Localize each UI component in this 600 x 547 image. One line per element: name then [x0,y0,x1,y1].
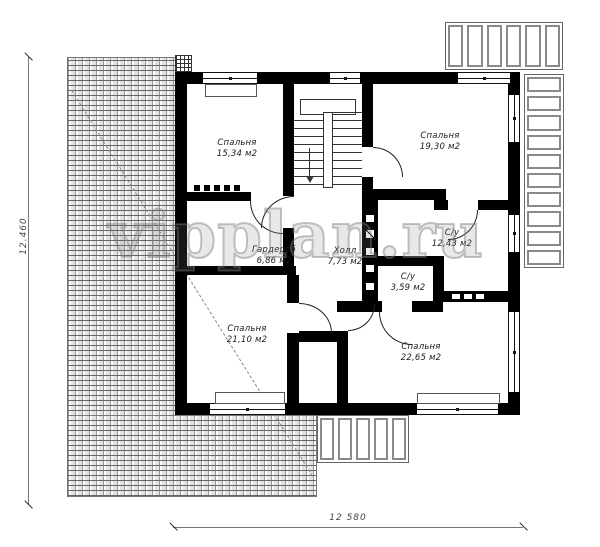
pergola-slat [374,418,388,460]
stair-direction-arrow [306,176,314,183]
pergola-slat [545,25,560,67]
wall-stair-left [283,72,294,175]
window [458,72,510,84]
pergola-slat [527,96,561,111]
pergola-top [445,22,563,70]
pergola-slat [527,173,561,188]
pergola-slat [467,25,482,67]
pergola-bottom [317,415,409,463]
pergola-right [524,74,564,268]
room-name: С/у [401,272,415,282]
window [417,403,498,415]
pergola-slat [527,231,561,246]
vent-mark [234,185,240,191]
room-name: Спальня [420,131,459,141]
shaft-vent-hatched [366,230,374,238]
room-area: 6,86 м2 [257,256,292,266]
wall-bedroom2-bottom-right-b [478,200,509,210]
stair-flight-right [332,112,362,186]
room-name: Спальня [217,138,256,148]
pergola-slat [527,154,561,169]
wall-bedroom1-bottom [175,192,251,201]
room-name: С/у [445,228,459,238]
door-arc-bath2 [379,312,412,345]
wall-bedroom3-right-a [287,275,299,303]
door-arc-bedroom3 [299,303,332,333]
stair-center-rail [323,112,333,188]
shaft-vent [366,215,374,222]
wall-stair-right [362,72,373,147]
pergola-slat [527,77,561,92]
room-name: Спальня [401,342,440,352]
pergola-slat [527,135,561,150]
room-area: 7,73 м2 [328,257,363,267]
pergola-slat [527,211,561,226]
pergola-slat [525,25,540,67]
room-area: 12,43 м2 [432,239,472,249]
room-area: 22,65 м2 [401,353,441,363]
room-label-bath2: С/у 3,59 м2 [363,272,453,294]
stair-direction-line [309,148,310,176]
room-area: 21,10 м2 [227,335,267,345]
pergola-slat [320,418,334,460]
vent-mark [224,185,230,191]
room-area: 3,59 м2 [391,283,426,293]
vent-mark-white [476,294,484,299]
wall-bedroom4-left [337,331,348,415]
window [330,72,360,84]
pergola-slat [527,192,561,207]
wall-stair-right-stub [362,177,373,189]
room-area: 15,34 м2 [217,149,257,159]
window [508,215,520,252]
wall-bath2-bottom-b [412,301,443,312]
door-arc-bedroom4 [348,304,375,331]
vent-mark [194,185,200,191]
pergola-slat [356,418,370,460]
window [508,312,520,392]
room-label-bedroom4: Спальня 22,65 м2 [376,342,466,364]
window [508,95,520,142]
room-name: Спальня [227,324,266,334]
vent-mark-white [464,294,472,299]
window-sill [417,393,500,404]
pergola-slat [448,25,463,67]
room-label-bath1: С/у 12,43 м2 [407,228,497,250]
pergola-slat [487,25,502,67]
dimension-value-vertical: 12.460 [19,206,29,266]
chimney-vent [175,55,192,73]
floor-plan-canvas: Спальня 15,34 м2 Спальня 19,30 м2 Гардер… [0,0,600,547]
dimension-line-vertical [28,57,29,505]
pergola-slat [506,25,521,67]
wall-wardrobe-bottom [175,266,296,275]
room-label-bedroom3: Спальня 21,10 м2 [202,324,292,346]
window-sill [215,392,285,404]
vent-mark [204,185,210,191]
room-label-bedroom1: Спальня 15,34 м2 [192,138,282,160]
room-label-hall: Холл 7,73 м2 [300,246,390,268]
pergola-slat [338,418,352,460]
wall-bedroom2-bottom-right-a [434,200,448,210]
pergola-slat [527,115,561,130]
room-name: Холл [334,246,357,256]
wall-outer-left [175,72,187,415]
vent-mark-white [452,294,460,299]
dimension-line-horizontal [173,527,523,528]
wall-hall-left-a [283,175,294,196]
pergola-slat [392,418,406,460]
dimension-value-horizontal: 12 580 [318,513,378,523]
room-label-bedroom2: Спальня 19,30 м2 [395,131,485,153]
window [210,403,285,415]
room-name: Гардероб [252,245,296,255]
window [203,72,257,84]
room-area: 19,30 м2 [420,142,460,152]
pergola-slat [527,250,561,265]
window-sill [205,84,257,97]
roof-hatch-bottom [67,415,317,497]
vent-mark [214,185,220,191]
